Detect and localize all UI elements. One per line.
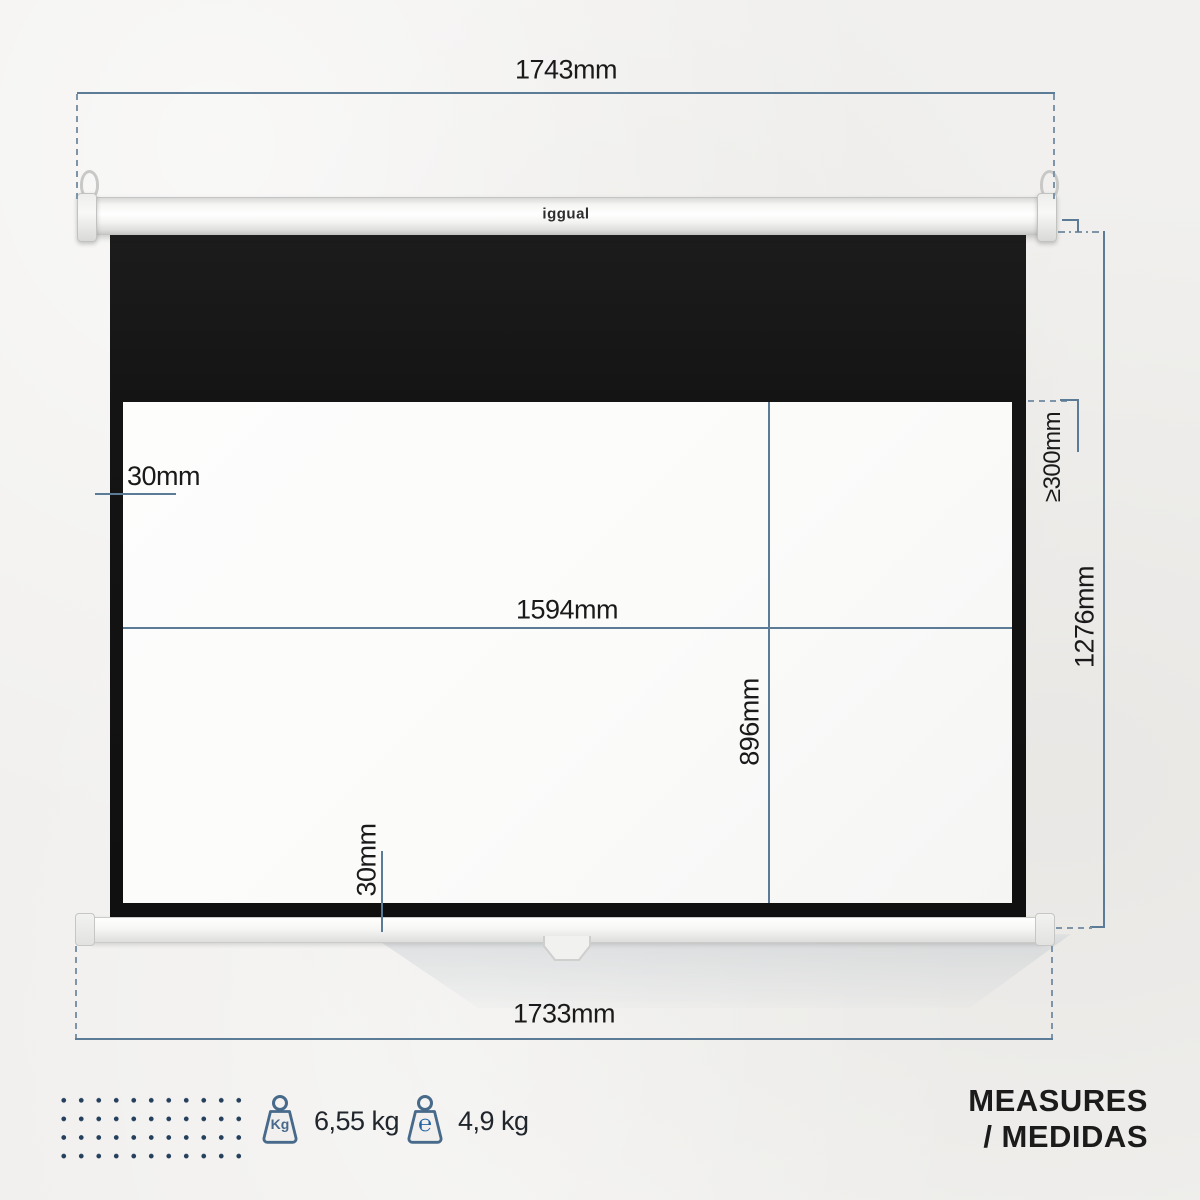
screen-viewing-area — [123, 402, 1012, 903]
dot-grid-pattern — [53, 1089, 243, 1159]
bar-end-cap-left — [75, 913, 95, 946]
dim-line-bar-width — [75, 1038, 1053, 1040]
dim-corner-total-height — [1090, 926, 1105, 928]
section-title-en: MEASURES — [968, 1083, 1148, 1119]
section-title: MEASURES / MEDIDAS — [968, 1083, 1148, 1155]
dim-label-top-drop: ≥300mm — [1039, 412, 1067, 502]
estimated-badge-label: ℮ — [418, 1111, 432, 1137]
net-weight-value: 4,9 kg — [458, 1106, 529, 1137]
estimated-weight-icon: ℮ — [403, 1094, 447, 1146]
dim-label-bar-width: 1733mm — [513, 999, 615, 1030]
dim-line-viewing-height — [768, 402, 770, 903]
dim-line-case-width — [77, 92, 1055, 94]
dim-leader-total-height — [1056, 927, 1092, 929]
dim-leader-top-drop-upper — [1058, 231, 1103, 233]
section-title-es: / MEDIDAS — [968, 1119, 1148, 1155]
dim-line-viewing-width — [123, 627, 1012, 629]
dim-bracket-top-drop-lower-v — [1077, 399, 1079, 452]
dim-extension-right — [1053, 94, 1055, 200]
dim-bracket-top-drop-upper-v — [1077, 219, 1079, 232]
brand-logo: iggual — [542, 206, 589, 223]
kg-weight-icon: Kg — [258, 1094, 302, 1146]
gross-weight-value: 6,55 kg — [314, 1106, 399, 1137]
dim-label-total-height: 1276mm — [1070, 566, 1101, 668]
dim-label-viewing-height: 896mm — [735, 678, 766, 766]
dim-extension-bottom-right — [1051, 946, 1053, 1038]
dim-extension-bottom-left — [75, 946, 77, 1038]
dim-extension-left — [76, 94, 78, 200]
dim-label-bottom-border: 30mm — [352, 823, 383, 896]
dim-label-viewing-width: 1594mm — [516, 595, 618, 626]
case-end-cap-left — [77, 193, 97, 242]
dim-line-total-height — [1103, 231, 1105, 928]
dim-line-side-border — [95, 493, 176, 495]
bar-end-cap-right — [1035, 913, 1055, 946]
dim-label-side-border: 30mm — [127, 461, 200, 492]
floor-shadow — [330, 934, 1110, 1008]
kg-badge-label: Kg — [271, 1116, 290, 1132]
case-end-cap-right — [1037, 193, 1057, 242]
product-measures-diagram: iggual 1743mm 1733mm 1594mm 896mm 30mm 3… — [0, 0, 1200, 1200]
dim-label-case-width: 1743mm — [515, 55, 617, 86]
pull-handle-face — [545, 936, 589, 959]
